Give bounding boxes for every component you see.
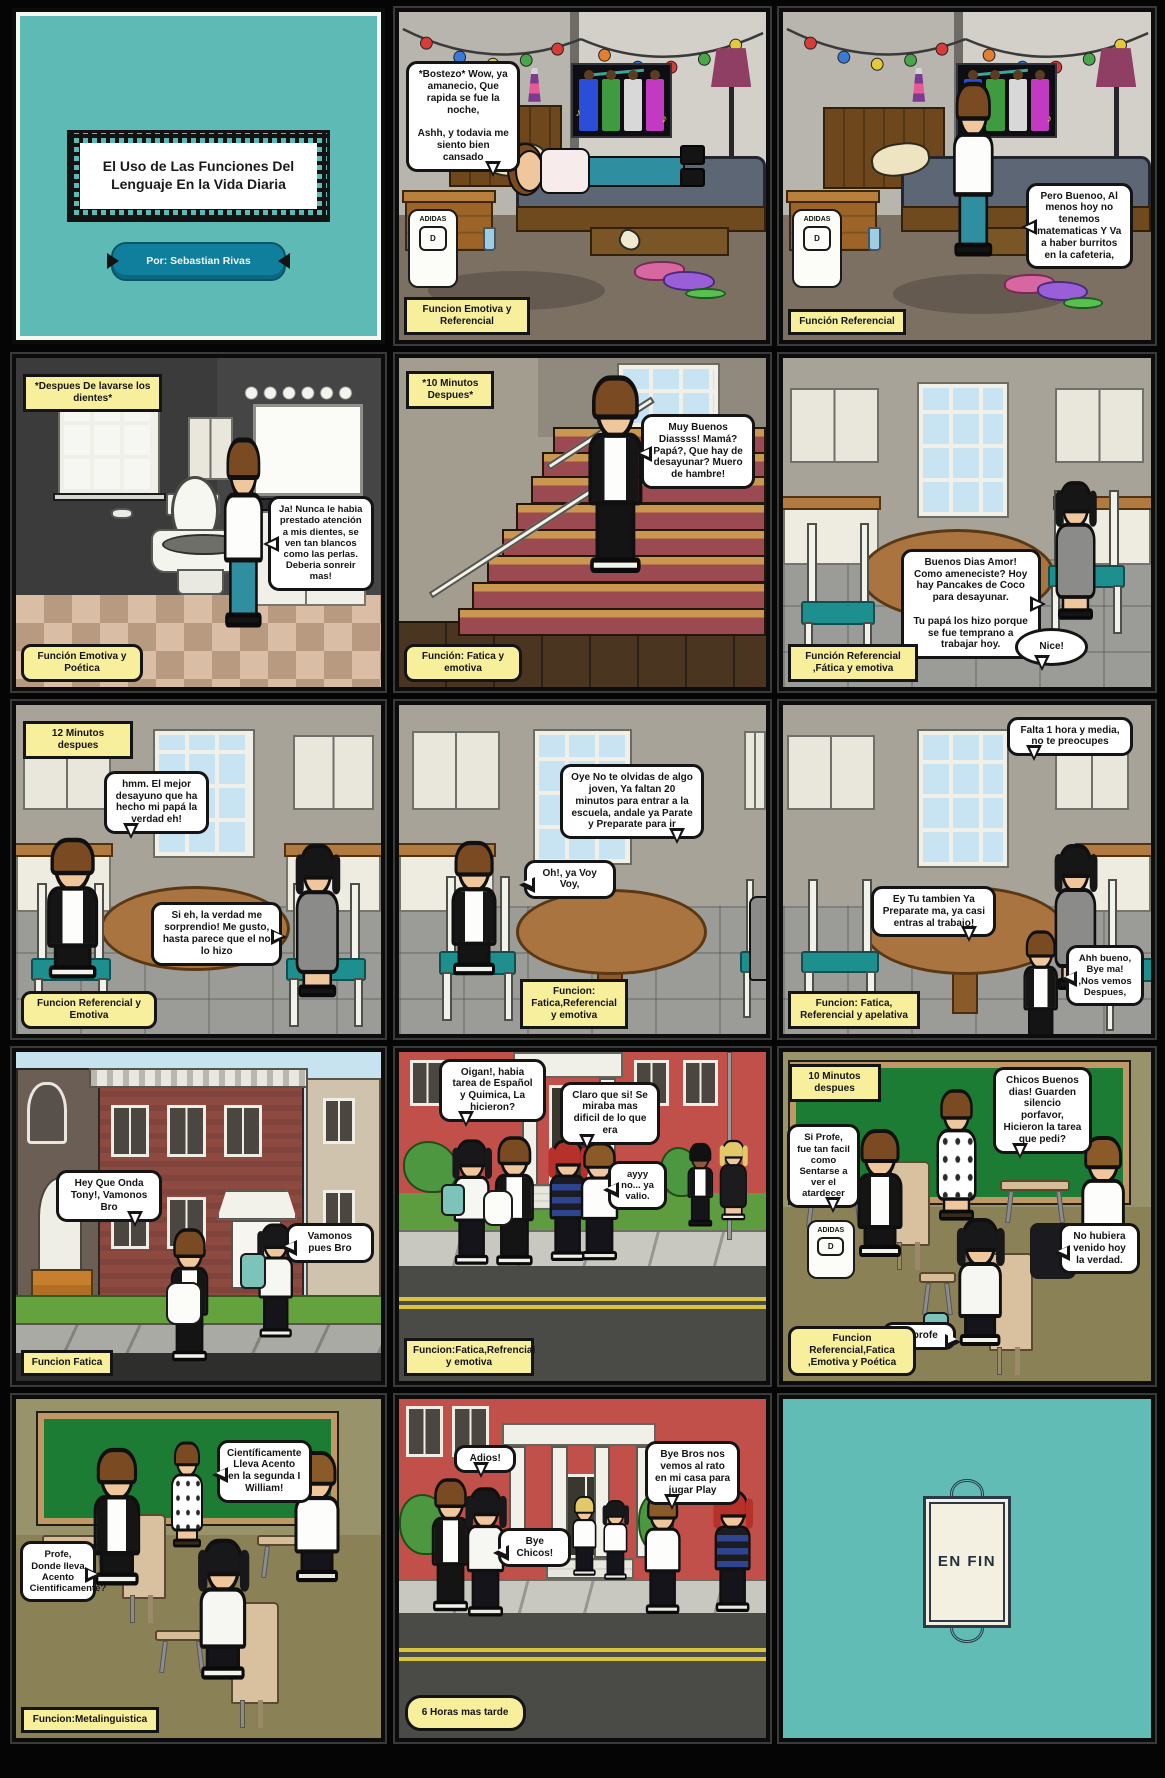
person-legs [459, 1218, 485, 1258]
person-legs [691, 1196, 710, 1222]
speech-bubble: Pero Buenoo, Al menos hoy no tenemos mat… [1026, 183, 1133, 270]
house-window [167, 1105, 205, 1158]
person-feet [716, 1603, 750, 1613]
person-head [457, 843, 490, 893]
person-teen [853, 1131, 907, 1257]
person-torso [603, 1523, 627, 1552]
school-window [406, 1406, 443, 1457]
student-bob [954, 1220, 1006, 1346]
person-feet [646, 1604, 680, 1614]
speech-bubble: No hubiera venido hoy la verdad. [1059, 1223, 1140, 1274]
toilet-base [177, 569, 224, 595]
person-torso [199, 1588, 246, 1650]
poster-figure [1009, 79, 1027, 131]
speech-bubble: Ey Tu tambien Ya Preparate ma, ya casi e… [871, 886, 996, 937]
stair-step [472, 582, 766, 610]
speech-bubble: Oigan!, habia tarea de Español y Quimica… [439, 1059, 545, 1122]
person-mom [1053, 483, 1098, 620]
panel-6-kitchen: Buenos Dias Amor! Como ameneciste? Hoy h… [779, 354, 1155, 691]
backpack-brand: ADIDAS [420, 216, 447, 223]
speech-bubble: Chicos Buenos dias! Guarden silencio por… [993, 1067, 1092, 1154]
road-yellow-line [399, 1305, 766, 1309]
panel-3-bedroom-sitting: ♪ ♪ ADIDAS D Pero Buenoo, Al menos hoy n… [779, 8, 1155, 344]
speech-bubble: Si Profe, fue tan facil como Sentarse a … [787, 1124, 861, 1207]
floor-lamp-shade [711, 48, 751, 87]
water-cup [868, 227, 881, 252]
person-head [1088, 1138, 1120, 1185]
person-head [863, 1131, 896, 1179]
student-distant [685, 1144, 716, 1227]
panel-4-bathroom: *Despues De lavarse los dientes* Ja! Nun… [12, 354, 385, 691]
speech-bubble: Falta 1 hora y media, no te preocupes [1007, 717, 1132, 757]
adidas-backpack: ADIDAS D [792, 209, 842, 288]
speech-bubble: hmm. El mejor desayuno que ha hecho mi p… [104, 771, 210, 834]
person-feet [48, 965, 96, 978]
function-label: Función Referencial ,Fática y emotiva [788, 644, 918, 682]
speech-bubble: *Bostezo* Wow, ya amanecio, Que rapida s… [406, 61, 520, 171]
window-sill [53, 493, 166, 501]
backpack-brand: ADIDAS [817, 1227, 844, 1234]
scene-caption: 10 Minutos despues [789, 1064, 881, 1102]
underbed-drawer [590, 227, 729, 257]
vanity-lights [242, 384, 355, 402]
clothes-pile [685, 288, 725, 299]
music-note-icon: ♪ [662, 113, 668, 125]
speech-bubble: Muy Buenos Diassss! Mamá? Papá?, Que hay… [641, 414, 755, 489]
function-label: Funcion Fatica [21, 1350, 113, 1376]
person-feet [1058, 608, 1093, 619]
speech-bubble: Ahh bueno, Bye ma! ,Nos vemos Despues, [1066, 945, 1143, 1006]
person-head [100, 1450, 134, 1502]
chair-leg [442, 972, 451, 1021]
person-torso [451, 887, 496, 946]
person-torso [47, 886, 98, 948]
person-torso [94, 1495, 140, 1555]
chair-leg [354, 978, 364, 1027]
person-feet [496, 1255, 532, 1265]
person-feet [172, 1350, 207, 1361]
person-legs [650, 1569, 676, 1607]
clothes-pile [1063, 297, 1103, 308]
title-frame: El Uso de Las Funciones Del Lenguaje En … [67, 130, 330, 222]
speech-bubble: Bye Bros nos vemos al rato en mi casa pa… [645, 1441, 740, 1504]
person-torso [1056, 523, 1096, 599]
school-desk [1000, 1180, 1070, 1191]
speech-bubble: Si eh, la verdad me sorprendio! Me gusto… [151, 902, 282, 965]
function-label: Funcion Emotiva y Referencial [404, 297, 530, 335]
student-bob [195, 1541, 251, 1680]
person-feet [573, 1570, 595, 1576]
person-teen [89, 1450, 145, 1585]
speech-bubble: ayyy no... ya valio. [608, 1161, 667, 1211]
title-box: El Uso de Las Funciones Del Lenguaje En … [80, 143, 317, 209]
floor-lamp-shade [1096, 48, 1136, 87]
person-legs [437, 1563, 465, 1605]
table-pedestal [952, 968, 978, 1014]
person-head [595, 378, 635, 440]
road-yellow-line [399, 1657, 766, 1661]
person-torso [645, 1528, 681, 1573]
person-teacher [169, 1443, 205, 1547]
kitchen-window [919, 731, 1007, 866]
panel-7-kitchen: 12 Minutos despues hmm. El mejor desayun… [12, 701, 385, 1038]
person-head [958, 84, 988, 139]
speech-bubble: Oh!, ya Voy Voy, [524, 860, 616, 900]
student-blonde [570, 1497, 599, 1576]
function-label: Funcion:Fatica,Refrencial y emotiva [404, 1338, 534, 1376]
chair-leg [504, 972, 513, 1021]
plate-arrow-left-icon [107, 253, 127, 269]
upper-cabinet-left [790, 388, 878, 464]
panel-end: EN FIN [779, 1395, 1155, 1742]
speech-bubble: Oye No te olvidas de algo joven, Ya falt… [560, 764, 703, 839]
backpack-pocket: D [803, 226, 831, 251]
scene-caption: 6 Horas mas tarde [405, 1695, 526, 1731]
panel-11-school-front: Oigan!, habia tarea de Español y Quimica… [395, 1048, 770, 1385]
road-yellow-line [399, 1648, 766, 1652]
plate-arrow-right-icon [270, 253, 290, 269]
person-torso [953, 132, 994, 196]
road-yellow-line [399, 1297, 766, 1301]
speech-bubble: Hey Que Onda Tony!, Vamonos Bro [56, 1170, 162, 1221]
person-mom-partial [749, 896, 770, 982]
speech-bubble: Profe, Donde lleva Acento Cientificament… [20, 1541, 97, 1602]
function-label: Función Referencial [788, 309, 906, 335]
teal-backpack [441, 1184, 465, 1217]
person-legs [1028, 1007, 1053, 1038]
person-teen-shoe [680, 168, 706, 188]
backpack-brand: ADIDAS [804, 216, 831, 223]
speech-bubble: Bye Chicos! [498, 1528, 571, 1568]
speech-bubble: Nice! [1015, 628, 1089, 666]
author-text: Por: Sebastian Rivas [146, 255, 250, 267]
speech-bubble: Claro que si! Se miraba mas dificil de l… [560, 1082, 659, 1145]
person-feet [722, 1213, 746, 1220]
author-plate: Por: Sebastian Rivas [111, 242, 286, 281]
person-head [229, 440, 258, 500]
house-left-window [27, 1082, 67, 1145]
person-feet [260, 1328, 292, 1337]
toilet-paper [111, 508, 133, 520]
person-legs [263, 1295, 288, 1331]
person-feet [954, 243, 992, 257]
water-cup [483, 227, 496, 252]
person-feet [590, 557, 640, 573]
panel-12-classroom: ADIDAS D 10 Minutos despues Chicos Bueno… [779, 1048, 1155, 1385]
backpack-pocket: D [817, 1237, 844, 1256]
person-feet [859, 1245, 901, 1257]
panel-10-street: Hey Que Onda Tony!, Vamonos Bro Vamonos … [12, 1048, 385, 1385]
adidas-backpack: ADIDAS D [408, 209, 458, 288]
person-feet [201, 1667, 244, 1680]
person-head [459, 1141, 485, 1181]
person-legs [472, 1569, 500, 1610]
teal-backpack [240, 1253, 266, 1289]
student-bob [601, 1501, 630, 1580]
bathroom-window [60, 407, 159, 493]
person-head [53, 840, 90, 893]
person-feet [455, 1255, 489, 1265]
person-teen [220, 440, 267, 628]
school-desk [919, 1272, 956, 1283]
function-label: Funcion Referencial,Fatica ,Emotiva y Po… [788, 1326, 916, 1376]
person-feet [582, 1251, 617, 1260]
person-legs [586, 1217, 614, 1254]
scene-caption: *10 Minutos Despues* [406, 371, 494, 409]
person-teen-legs [586, 156, 685, 187]
house-window [224, 1105, 262, 1158]
storyboard-canvas: El Uso de Las Funciones Del Lenguaje En … [0, 0, 1165, 1778]
upper-cabinet-left [412, 731, 500, 810]
chair-leg [1113, 585, 1122, 634]
person-feet [299, 985, 337, 998]
person-head [500, 1138, 529, 1179]
person-feet [226, 613, 262, 628]
person-teen [949, 84, 998, 257]
upper-cabinet-left [787, 735, 875, 811]
function-label: Función Emotiva y Poética [21, 644, 143, 682]
person-feet [296, 1570, 338, 1582]
kitchen-window [919, 384, 1007, 516]
person-head [472, 1489, 500, 1530]
student-girl-redhair [711, 1492, 754, 1612]
house-window [111, 1105, 149, 1158]
person-torso [720, 1164, 747, 1208]
cornice [89, 1068, 308, 1088]
person-teen [42, 840, 103, 979]
vanity-mirror [253, 404, 363, 496]
person-torso [958, 1262, 1002, 1318]
person-head [1062, 483, 1090, 529]
function-label: Funcion:Metalinguistica [21, 1707, 159, 1733]
person-feet [453, 963, 495, 976]
person-legs [595, 500, 635, 562]
function-label: Funcion: Fatica,Referencial y emotiva [520, 979, 628, 1029]
person-legs [958, 192, 988, 247]
panel-8-kitchen: Oye No te olvidas de algo joven, Ya falt… [395, 701, 770, 1038]
person-torso [857, 1173, 902, 1229]
person-teacher [934, 1091, 979, 1221]
panel-14-school-exit: Adios! Bye Chicos! Bye Bros nos vemos al… [395, 1395, 770, 1742]
function-label: Funcion Referencial y Emotiva [21, 991, 157, 1029]
person-teen [447, 843, 501, 975]
speech-bubble: Ja! Nunca le habia prestado atención a m… [268, 496, 374, 590]
house-window [323, 1098, 356, 1144]
end-text: EN FIN [938, 1553, 996, 1570]
band-poster: ♪ ♪ [571, 63, 672, 138]
person-torso [688, 1167, 714, 1198]
white-backpack [483, 1190, 512, 1226]
school-window [683, 1060, 718, 1106]
student-distant-blonde [718, 1141, 749, 1220]
person-teen-torso [540, 148, 590, 194]
panel-13-classroom: Científicamente Lleva Acento en la segun… [12, 1395, 385, 1742]
stair-step [458, 608, 766, 636]
panel-2-bedroom-waking: ♪ ♪ ADIDAS D *Bostezo* Wow, ya aman [395, 8, 770, 344]
person-teen-shoe [680, 145, 706, 165]
person-feet [689, 1220, 713, 1227]
poster-figure [602, 79, 620, 131]
person-head [176, 1230, 204, 1272]
scene-caption: *Despues De lavarse los dientes* [23, 374, 162, 412]
poster-figure [624, 79, 642, 131]
upper-cabinet-right [1055, 388, 1143, 464]
music-note-icon: ♪ [1047, 113, 1053, 125]
scene-caption: 12 Minutos despues [23, 721, 133, 759]
person-feet [468, 1606, 503, 1616]
speech-bubble: Vamonos pues Bro [286, 1223, 374, 1263]
person-torso [572, 1519, 596, 1548]
panel-9-kitchen: Falta 1 hora y media, no te preocupes Ey… [779, 701, 1155, 1038]
function-label: Funcion: Fatica, Referencial y apelativa [788, 991, 920, 1029]
function-label: Función: Fatica y emotiva [404, 644, 522, 682]
comic-title: El Uso de Las Funciones Del Lenguaje En … [84, 158, 313, 193]
poster-figure [579, 79, 597, 131]
adidas-backpack: ADIDAS D [807, 1220, 855, 1279]
white-backpack [166, 1282, 203, 1325]
backpack-pocket: D [419, 226, 447, 251]
person-legs [575, 1547, 593, 1572]
panel-title: El Uso de Las Funciones Del Lenguaje En … [12, 8, 385, 344]
person-legs [229, 558, 258, 618]
upper-cabinet-right [293, 735, 373, 811]
portico-entablature [502, 1423, 656, 1447]
person-feet [604, 1573, 626, 1579]
panel-5-stairs: *10 Minutos Despues* Muy Buenos Diassss!… [395, 354, 770, 691]
person-torso [588, 432, 642, 505]
person-torso [171, 1474, 203, 1532]
person-teen [583, 378, 648, 573]
person-legs [719, 1567, 745, 1605]
awning [217, 1190, 297, 1220]
person-torso [715, 1526, 751, 1571]
dining-table [516, 889, 707, 975]
person-mom [293, 846, 342, 997]
upper-cabinet-right [744, 731, 766, 810]
speech-bubble: Adios! [454, 1445, 516, 1473]
person-torso [296, 891, 339, 975]
end-frame: EN FIN [923, 1496, 1011, 1628]
person-legs [606, 1550, 624, 1575]
person-head [964, 1220, 996, 1268]
person-torso [936, 1129, 976, 1201]
speech-bubble: Científicamente Lleva Acento en la segun… [217, 1440, 312, 1503]
music-note-icon: ♪ [575, 107, 581, 119]
person-torso [294, 1496, 339, 1553]
